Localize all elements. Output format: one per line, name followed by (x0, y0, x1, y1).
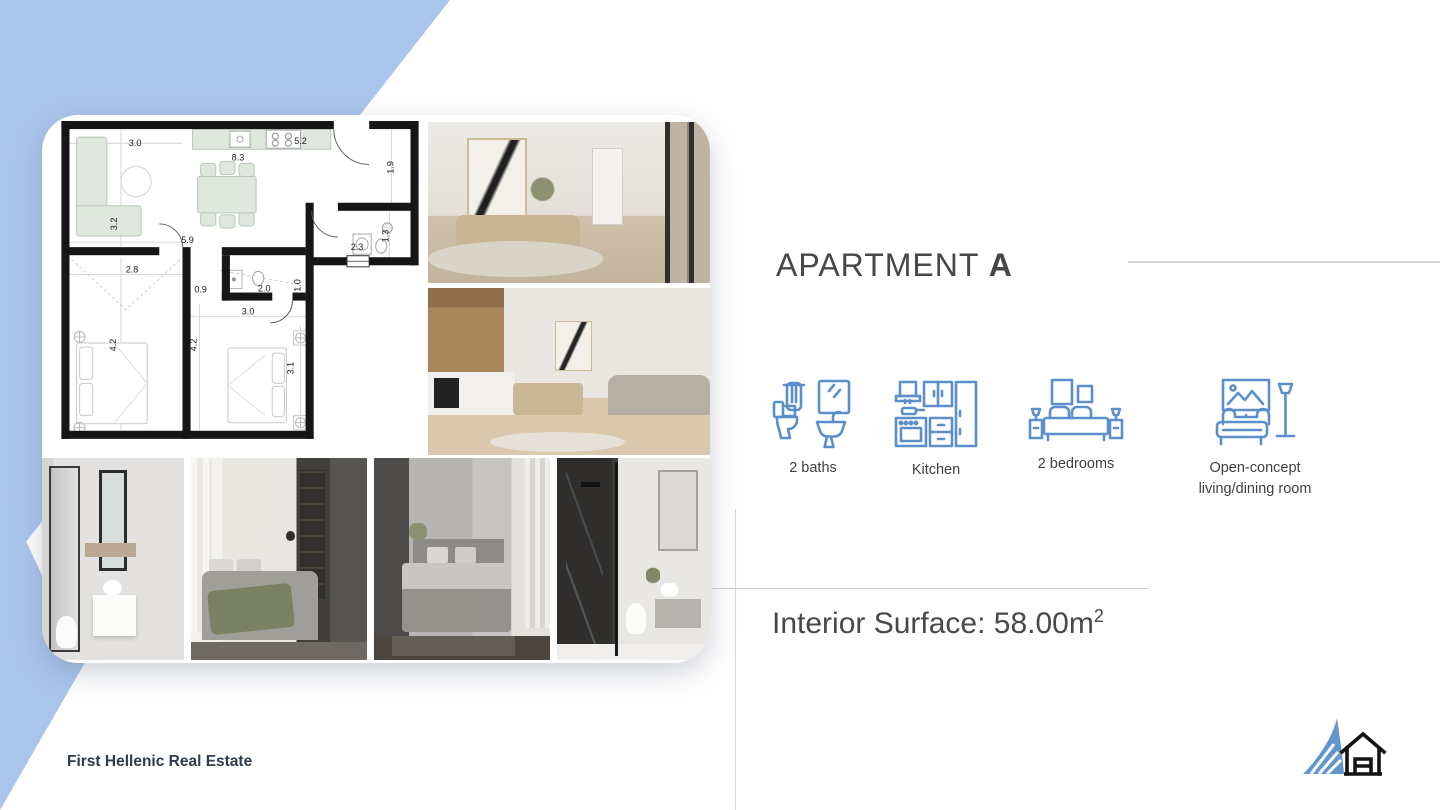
dim-label: 3.1 (285, 362, 295, 375)
title-emphasis: A (989, 247, 1013, 283)
basin (661, 583, 678, 597)
interior-surface-text: Interior Surface: 58.00m2 (772, 606, 1104, 641)
door (592, 148, 623, 225)
dim-label: 5.2 (294, 136, 307, 146)
marble-vein (566, 458, 603, 660)
glass-frame (615, 462, 618, 656)
toilet (56, 616, 77, 648)
dim-label: 1.3 (380, 230, 390, 243)
dim-label: 2.8 (126, 264, 139, 274)
rug (490, 432, 625, 452)
page-title: APARTMENT A (776, 248, 1013, 283)
title-prefix: APARTMENT (776, 247, 989, 283)
shower-head (581, 482, 599, 487)
curtain (525, 458, 550, 628)
rug-circle (121, 166, 151, 196)
wall-art (467, 138, 526, 222)
dim-label: 1.0 (293, 279, 303, 292)
kitchen-icon (892, 378, 980, 452)
floor-plan-drawing: 3.0 8.3 5.2 1.9 3.2 5.9 2.3 1.3 2.8 0.9 … (58, 119, 422, 457)
wall-lamp (286, 531, 295, 541)
pillow (427, 547, 448, 563)
feature-label: Open-concept living/dining room (1180, 458, 1330, 500)
mountain-peak-icon (1303, 718, 1344, 774)
dining-table (513, 383, 584, 415)
company-name: First Hellenic Real Estate (67, 753, 252, 771)
dim-label: 3.0 (242, 307, 255, 317)
slide: 3.0 8.3 5.2 1.9 3.2 5.9 2.3 1.3 2.8 0.9 … (0, 0, 1440, 810)
dim-label: 4.2 (108, 339, 118, 352)
window-symbol (347, 256, 369, 267)
dim-label: 1.9 (385, 161, 395, 174)
apartment-media-card: 3.0 8.3 5.2 1.9 3.2 5.9 2.3 1.3 2.8 0.9 … (42, 115, 710, 663)
vertical-divider-line (735, 509, 736, 810)
feature-label: Kitchen (871, 460, 1001, 481)
kitchen-living-room-photo (428, 288, 710, 455)
dim-label: 5.9 (181, 235, 194, 245)
dim-label: 8.3 (232, 152, 245, 162)
bedroom-photo (191, 458, 367, 660)
pillow (455, 547, 476, 563)
surface-superscript: 2 (1094, 606, 1104, 626)
dim-label: 2.3 (351, 242, 364, 252)
section-divider-line (712, 588, 1148, 589)
rug (428, 241, 603, 276)
window-frames (665, 122, 710, 283)
bed (402, 563, 511, 632)
oven (434, 378, 459, 408)
feature-living-dining: Open-concept living/dining room (1180, 378, 1330, 500)
shower-bathroom-photo (557, 458, 710, 660)
vanity (93, 595, 136, 635)
second-bedroom-photo (374, 458, 550, 660)
feature-kitchen: Kitchen (871, 378, 1001, 481)
feature-bedrooms: 2 bedrooms (1011, 378, 1141, 475)
dim-label: 3.0 (129, 138, 142, 148)
floor-plan: 3.0 8.3 5.2 1.9 3.2 5.9 2.3 1.3 2.8 0.9 … (58, 119, 422, 457)
dim-label: 4.2 (189, 339, 199, 352)
wall-niche (85, 543, 136, 557)
dim-label: 0.9 (194, 285, 207, 295)
sofa-lamp-icon (1209, 378, 1301, 450)
company-logo (1297, 714, 1397, 780)
sofa (608, 375, 710, 415)
feature-label: 2 bedrooms (1011, 454, 1141, 475)
plant (530, 177, 555, 212)
bathroom-photo (42, 458, 184, 660)
feature-label: 2 baths (748, 458, 878, 479)
house-icon (1342, 734, 1384, 774)
bathroom-icon (771, 378, 855, 450)
bedroom-icon (1028, 378, 1124, 446)
plant (646, 567, 660, 591)
dining-room-photo (428, 122, 710, 283)
vanity (655, 599, 701, 627)
wall-art (555, 321, 592, 371)
dim-label: 3.2 (109, 218, 119, 231)
mirror (658, 470, 698, 551)
surface-value: Interior Surface: 58.00m (772, 607, 1094, 640)
toilet (626, 603, 646, 633)
title-rule (1128, 261, 1440, 263)
feature-baths: 2 baths (748, 378, 878, 479)
dim-label: 2.0 (258, 284, 271, 294)
rug (392, 636, 515, 656)
